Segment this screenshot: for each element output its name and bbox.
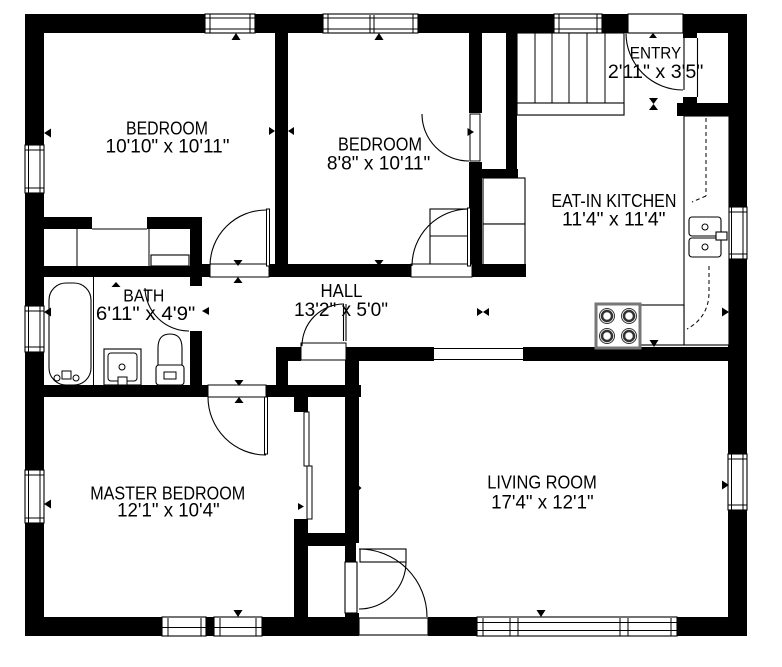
svg-text:HALL: HALL xyxy=(321,281,363,301)
svg-text:LIVING ROOM: LIVING ROOM xyxy=(487,472,597,492)
svg-text:EAT-IN KITCHEN: EAT-IN KITCHEN xyxy=(551,191,676,211)
svg-text:2'11" x 3'5": 2'11" x 3'5" xyxy=(608,62,704,83)
svg-text:13'2" x 5'0": 13'2" x 5'0" xyxy=(294,300,388,321)
svg-text:17'4" x 12'1": 17'4" x 12'1" xyxy=(491,492,594,513)
svg-text:BATH: BATH xyxy=(123,286,164,306)
svg-text:11'4" x 11'4": 11'4" x 11'4" xyxy=(562,209,666,230)
svg-text:ENTRY: ENTRY xyxy=(630,43,682,62)
svg-text:BEDROOM: BEDROOM xyxy=(338,134,422,154)
svg-text:6'11" x 4'9": 6'11" x 4'9" xyxy=(96,304,196,325)
svg-text:12'1" x 10'4": 12'1" x 10'4" xyxy=(117,501,220,522)
svg-text:10'10" x 10'11": 10'10" x 10'11" xyxy=(106,136,230,157)
svg-text:8'8" x 10'11": 8'8" x 10'11" xyxy=(327,153,431,174)
